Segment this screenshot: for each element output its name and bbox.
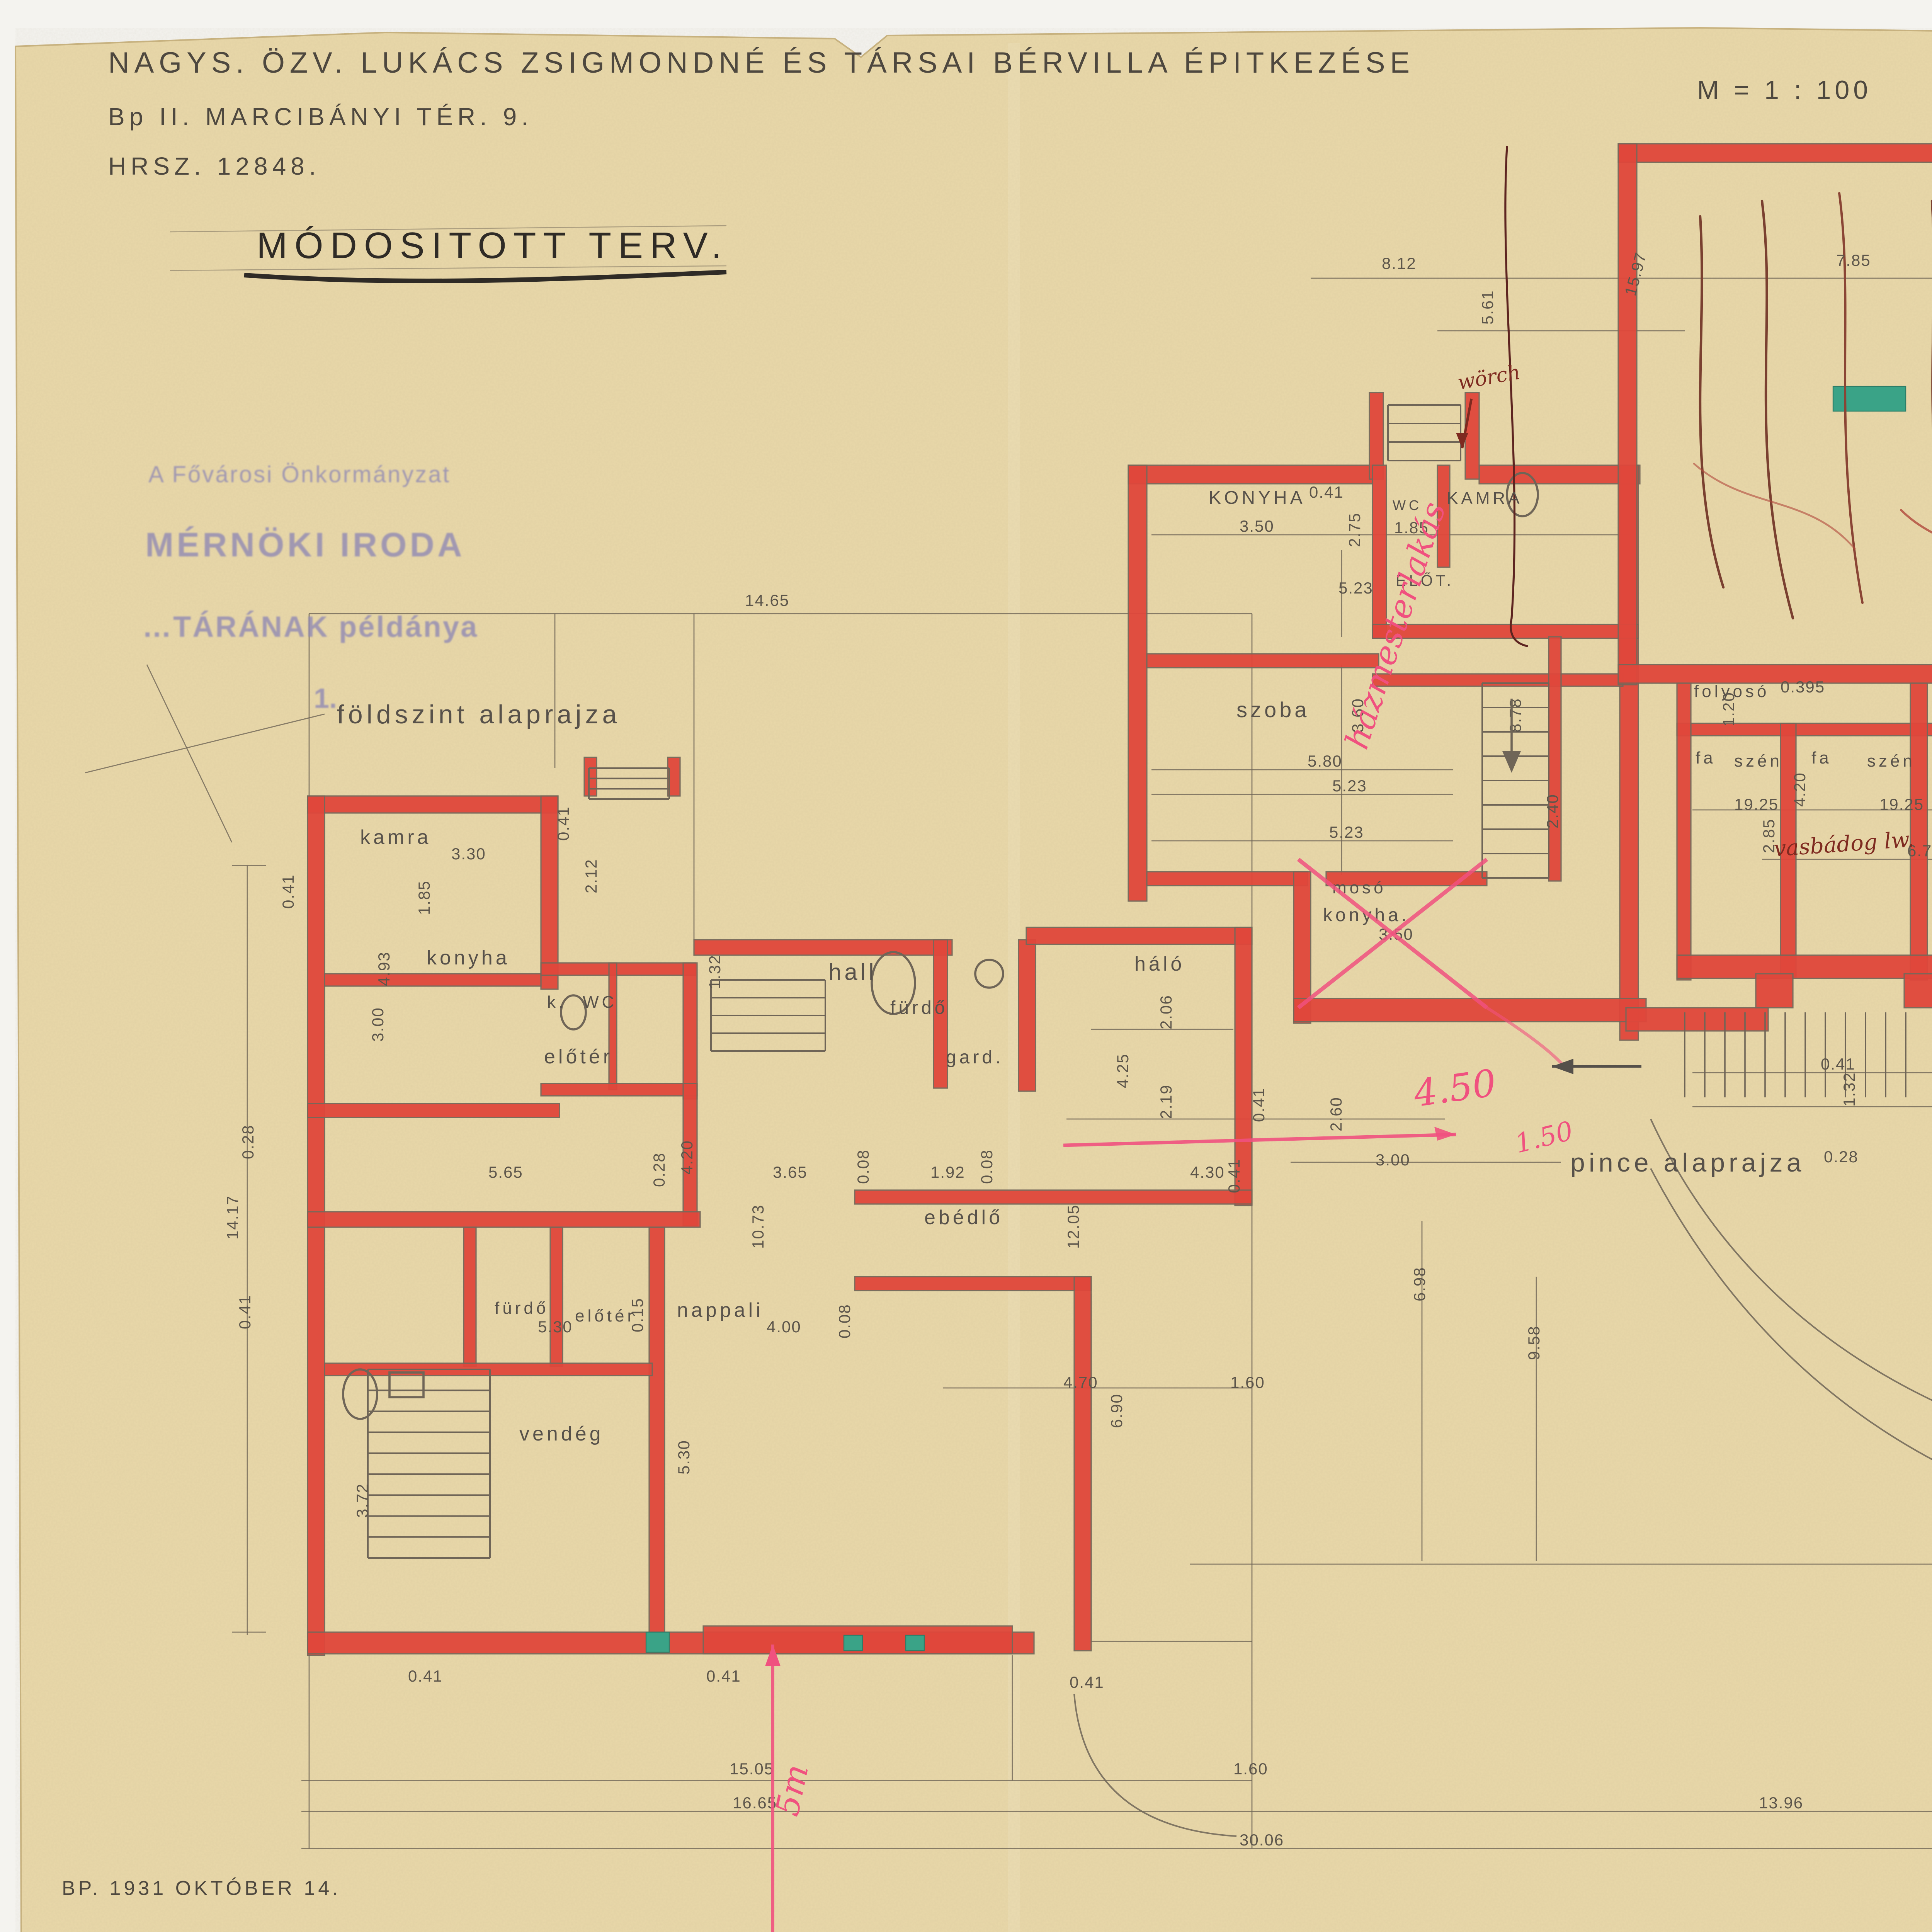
wall-segment [1618,144,1932,162]
dimension-label: 0.28 [650,1152,668,1187]
dimension-label: 3.00 [1376,1151,1410,1169]
room-label: háló [1134,953,1185,975]
teal-door-mark [906,1635,924,1651]
wall-segment [550,1227,563,1366]
wall-segment [1019,940,1036,1091]
dimension-label: 5.23 [1332,777,1367,795]
room-label: KONYHA [1209,488,1306,508]
dimension-label: 5.80 [1308,752,1342,770]
dimension-label: 0.41 [1225,1158,1243,1193]
room-label: fa [1811,748,1832,767]
teal-door-mark [646,1632,669,1652]
room-label: szoba [1236,697,1310,722]
dimension-label: 10.73 [749,1204,767,1249]
wall-segment [855,1190,1252,1204]
dimension-label: 4.20 [678,1140,696,1175]
room-label: ebédlő [924,1206,1003,1229]
wall-segment [1677,723,1932,736]
room-label: konyha [427,947,510,969]
dimension-label: 8.78 [1506,698,1524,733]
wall-segment [1549,637,1561,881]
dimension-label: 12.05 [1064,1204,1082,1249]
dimension-label: 15.05 [730,1760,774,1778]
wall-segment [1626,1008,1768,1031]
dimension-label: 5.30 [675,1440,693,1475]
dimension-label: 0.41 [1070,1673,1104,1691]
wall-segment [308,1212,700,1227]
dimension-label: 0.41 [1309,483,1344,501]
dimension-label: 14.65 [745,591,789,609]
dimension-label: 0.41 [408,1667,443,1685]
room-label: vendég [519,1423,604,1445]
dimension-label: 6.98 [1410,1267,1429,1301]
dimension-label: 0.15 [628,1298,646,1332]
dimension-label: 2.60 [1327,1097,1345,1131]
dimension-label: 0.41 [236,1294,254,1329]
room-label: fürdő [495,1299,549,1318]
wall-segment [1677,955,1932,978]
dimension-label: 5.30 [538,1318,573,1336]
dimension-label: 0.41 [1250,1087,1268,1122]
wall-segment [609,963,617,1090]
drawing-canvas: kamrakonyhak.WCelőtérhallfürdőgard.hálóe… [0,0,1932,1932]
room-label: szén [1734,752,1782,770]
wall-segment [1128,465,1372,484]
wall-segment [584,757,597,796]
wall-segment [649,1227,665,1651]
room-label: nappali [677,1299,764,1321]
dimension-label: 5.65 [488,1163,523,1181]
dimension-label: 0.41 [1821,1055,1855,1073]
dimension-label: 4.70 [1063,1373,1098,1391]
stamp-line2: MÉRNÖKI IRODA [145,526,465,564]
subtitle: MÓDOSITOTT TERV. [257,225,729,266]
wall-segment [1618,665,1932,683]
dimension-label: 2.40 [1543,794,1561,828]
plan-title-ground-floor: földszint alaprajza [337,700,621,729]
dimension-label: 1.32 [1840,1072,1858,1107]
dimension-label: 5.61 [1478,290,1497,325]
wall-segment [308,1104,560,1117]
dimension-label: 0.08 [978,1149,996,1184]
dimension-label: 6.90 [1107,1393,1126,1428]
wall-segment [464,1227,476,1366]
dimension-label: 3.65 [773,1163,808,1181]
wall-segment [1372,674,1623,686]
room-label: gard. [946,1047,1003,1068]
dimension-label: 3.00 [369,1007,387,1042]
stamp-line3: …TÁRÁNAK példánya [142,611,478,643]
dimension-label: 0.41 [706,1667,741,1685]
room-label: szén [1867,752,1915,770]
wall-segment [1147,872,1308,886]
wall-segment [325,974,541,986]
scale-note: M = 1 : 100 [1697,75,1872,105]
wall-segment [1618,144,1637,685]
title-line2: Bp II. MARCIBÁNYI TÉR. 9. [108,103,533,131]
room-label: hall [828,959,877,985]
date-note: BP. 1931 OKTÓBER 14. [62,1877,341,1900]
dimension-label: 8.12 [1382,254,1417,272]
dimension-label: 0.41 [554,806,572,841]
wall-segment [308,796,558,813]
dimension-label: 4.20 [1791,772,1809,807]
dimension-label: 0.08 [835,1304,854,1338]
dimension-label: 19.25 [1879,795,1924,813]
dimension-label: 5.23 [1338,579,1373,597]
wall-segment [541,963,696,975]
wall-segment [855,1277,1091,1291]
title-line3: HRSZ. 12848. [108,152,321,180]
dimension-label: 4.00 [767,1318,801,1336]
dimension-label: 9.58 [1525,1325,1543,1360]
wall-segment [1147,654,1379,668]
wall-segment [1904,974,1932,1008]
dimension-label: 4.93 [375,951,393,986]
room-label: előtér [575,1306,636,1325]
wall-segment [694,940,952,955]
dimension-label: 0.28 [1824,1148,1859,1166]
dimension-label: 3.50 [1240,517,1274,535]
dimension-label: 7.85 [1836,251,1871,269]
room-label: fürdő [890,998,948,1018]
dimension-label: 14.17 [223,1195,241,1240]
room-label: k. [547,993,566,1012]
dimension-label: 1.60 [1233,1760,1268,1778]
dimension-label: 2.06 [1157,995,1175,1029]
wall-segment [1074,1277,1091,1651]
wall-segment [1479,465,1640,484]
dimension-label: 5.23 [1329,823,1364,841]
wall-segment [1294,998,1646,1022]
wall-segment [541,1083,697,1096]
wall-segment [1128,465,1147,901]
dimension-label: 1.20 [1719,692,1738,726]
plan-title-basement: pince alaprajza [1570,1148,1805,1177]
dimension-label: 1.92 [930,1163,965,1181]
dimension-label: 1.32 [706,954,724,989]
room-label: WC [583,993,617,1012]
dimension-label: 0.395 [1781,678,1825,696]
dimension-label: 19.25 [1734,795,1779,813]
dimension-label: 1.60 [1230,1373,1265,1391]
room-label: KAMRA [1447,489,1522,508]
scanned-floor-plan-sheet: kamrakonyhak.WCelőtérhallfürdőgard.hálóe… [0,0,1932,1932]
dimension-label: 0.41 [279,874,297,909]
wall-segment [1026,927,1252,944]
dimension-label: 2.75 [1345,512,1364,547]
dimension-label: 13.96 [1759,1794,1803,1812]
room-label: előtér [544,1046,613,1068]
wall-segment [1756,974,1793,1008]
dimension-label: 1.85 [415,880,433,915]
dimension-label: 3.72 [353,1483,371,1518]
dimension-label: 4.25 [1114,1053,1132,1088]
dimension-label: 30.06 [1240,1831,1284,1849]
dimension-label: 0.28 [239,1124,257,1159]
room-label: kamra [360,826,431,849]
wall-segment [683,963,697,1099]
teal-door-mark [844,1635,862,1651]
wall-segment [1677,683,1691,980]
dimension-label: 2.19 [1157,1084,1175,1119]
stamp-line4: 1. [314,683,337,714]
dimension-label: 4.30 [1190,1163,1225,1181]
wall-segment [1465,393,1479,479]
dimension-label: 3.30 [451,845,486,863]
stamp-line1: A Fővárosi Önkormányzat [148,461,451,487]
title-line1: NAGYS. ÖZV. LUKÁCS ZSIGMONDNÉ ÉS TÁRSAI … [108,46,1415,79]
dimension-label: 2.12 [582,859,600,893]
dimension-label: 0.08 [854,1149,872,1184]
dimension-label: 0.15 [1930,769,1932,804]
room-label: fa [1696,748,1716,767]
